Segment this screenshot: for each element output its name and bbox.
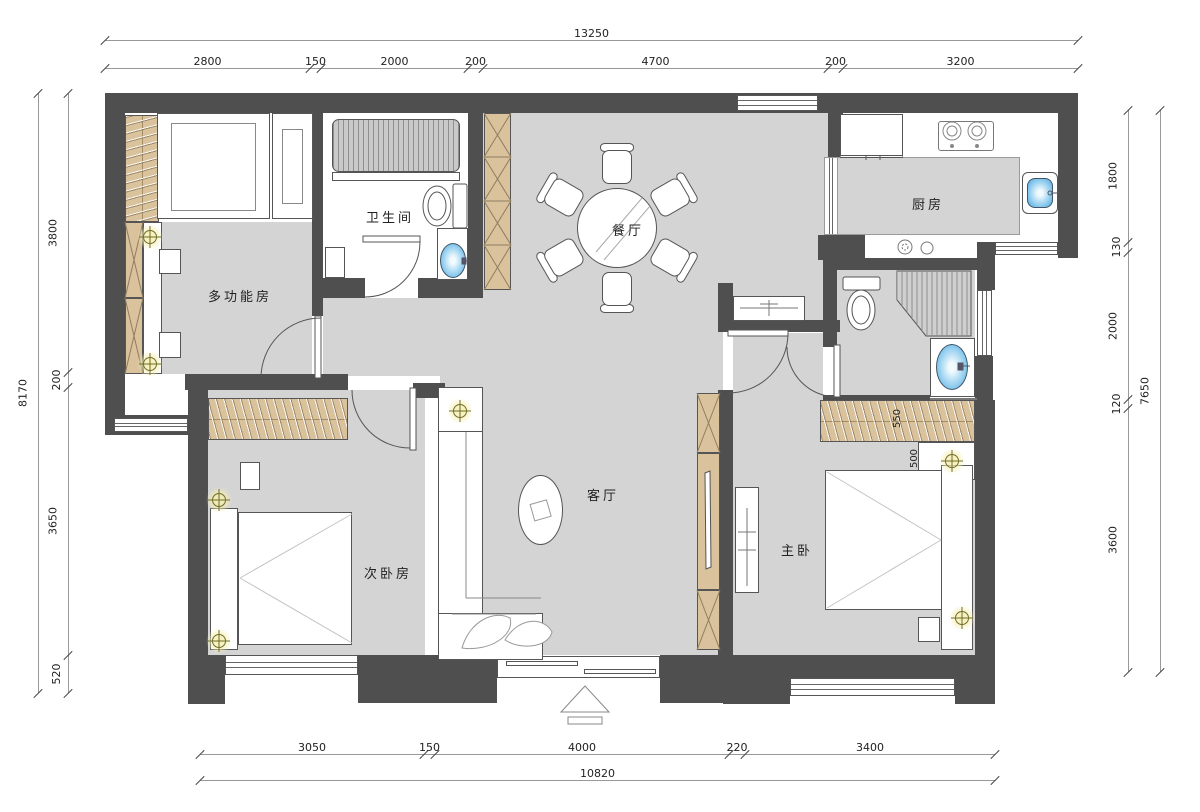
hall-console: [733, 296, 805, 321]
wardrobe-second-bedroom: [208, 398, 348, 440]
bath1-side-cabinet: [325, 247, 345, 278]
nightstand-multi-1: [159, 249, 181, 274]
sofa-seam: [440, 615, 481, 658]
wall-bath-right: [468, 113, 483, 298]
dim-left-segments: 3800 200 3650 520: [52, 93, 69, 693]
kitchen-sliding-door: [824, 157, 838, 235]
dim-left-total: 8170: [22, 93, 39, 693]
window-second-bedroom: [225, 655, 358, 675]
bathtub-ledge: [332, 172, 460, 181]
dining-chair: [600, 267, 634, 313]
storage-cabinet-strip: [484, 113, 511, 290]
window-ensuite: [977, 290, 992, 356]
wall-kitchen-entry-stub: [818, 235, 865, 260]
floor-plan: 多功能房 卫生间 餐厅 厨房 次卧房 客厅 主卧 550 500 13250 2…: [0, 0, 1200, 812]
dim-top-segments: 2800 150 2000 200 4700 200 3200: [105, 52, 1078, 69]
gas-stove: [938, 121, 994, 151]
window-master-bedroom: [790, 678, 955, 696]
pier-bottom-c: [660, 655, 723, 703]
cabinet-x-multi-1: [125, 222, 143, 298]
slider-panel: [506, 661, 578, 666]
room-label-master-bedroom: 主卧: [767, 540, 827, 559]
room-label-second-bedroom: 次卧房: [343, 563, 433, 582]
room-label-dining: 餐厅: [598, 220, 658, 239]
wall-living-master: [718, 390, 733, 678]
dim-bottom-total: 10820: [200, 764, 995, 781]
room-label-bathroom: 卫生间: [345, 207, 435, 226]
coffee-table: [518, 475, 563, 545]
tv-wall-middle: [697, 453, 720, 590]
window-kitchen: [995, 242, 1058, 255]
kitchen-sink: [1022, 172, 1058, 214]
dim-top-total: 13250: [105, 24, 1078, 41]
refrigerator: [840, 114, 903, 158]
room-label-kitchen: 厨房: [898, 194, 958, 213]
tv-wall-cabinet-bottom: [697, 590, 720, 650]
ensuite-basin: [936, 344, 968, 390]
dim-right-segments: 1800 130 2000 120 3600: [1112, 110, 1129, 672]
wall-master-right: [975, 400, 995, 678]
slider-panel: [584, 669, 656, 674]
wardrobe-multi: [125, 115, 159, 222]
door-bathroom: [363, 236, 420, 297]
bed-multi-mattress: [171, 123, 256, 211]
wall-right-stub: [977, 242, 995, 290]
floor-drain-and-meter: [898, 240, 933, 254]
wall-top: [105, 93, 1078, 113]
wall-master-bottom: [723, 655, 975, 678]
dim-bedside-ledge: 500: [909, 449, 920, 468]
washbasin-bath1: [440, 243, 466, 278]
bed-second-bedroom: [238, 512, 352, 645]
pier-bottom-a: [198, 655, 225, 704]
wall-ensuite-right-lower: [975, 356, 993, 402]
entry-symbol: [561, 686, 609, 724]
wall-master-door: [718, 320, 840, 332]
cabinet-x-multi-2: [125, 298, 143, 374]
room-label-living: 客厅: [573, 485, 633, 504]
bed-master: [825, 470, 943, 610]
bathtub: [332, 119, 460, 172]
lamp-box-living: [438, 387, 483, 432]
wall-band-bedrooms: [185, 374, 348, 390]
wall-ensuite-top: [837, 258, 977, 270]
headboard-second-bedroom: [210, 508, 238, 650]
nightstand-multi-2: [159, 332, 181, 358]
cabinet-multi-inner: [282, 129, 303, 204]
headboard-master: [941, 465, 973, 650]
wall-left-upper: [105, 113, 125, 435]
tv-cabinet-master: [735, 487, 759, 593]
window-multi-room: [114, 418, 188, 432]
wall-kitchen-right: [1058, 113, 1078, 258]
wall-multi-right: [312, 113, 323, 316]
dining-chair: [600, 143, 634, 189]
dim-right-total: 7650: [1144, 110, 1161, 672]
pier-bottom-e: [955, 678, 995, 704]
nightstand-master: [918, 617, 940, 642]
window-dining-top: [737, 95, 818, 111]
wall-bath-bottom-right: [418, 278, 483, 298]
pier-bottom-b: [358, 655, 497, 703]
wall-bath-bottom-left: [323, 278, 365, 298]
floor-hallway: [733, 333, 823, 400]
nightstand-second-bedroom: [240, 462, 260, 490]
dim-wardrobe-depth: 550: [892, 409, 903, 428]
room-label-multi-function: 多功能房: [175, 286, 305, 305]
wall-stub-above-master-door: [718, 283, 733, 320]
tv-wall-cabinet-top: [697, 393, 720, 453]
dim-bottom-segments: 3050 150 4000 220 3400: [200, 738, 995, 755]
kitchen-sink-basin: [1027, 178, 1053, 208]
wall-ensuite-left: [823, 258, 837, 347]
pier-bottom-d: [723, 678, 790, 704]
